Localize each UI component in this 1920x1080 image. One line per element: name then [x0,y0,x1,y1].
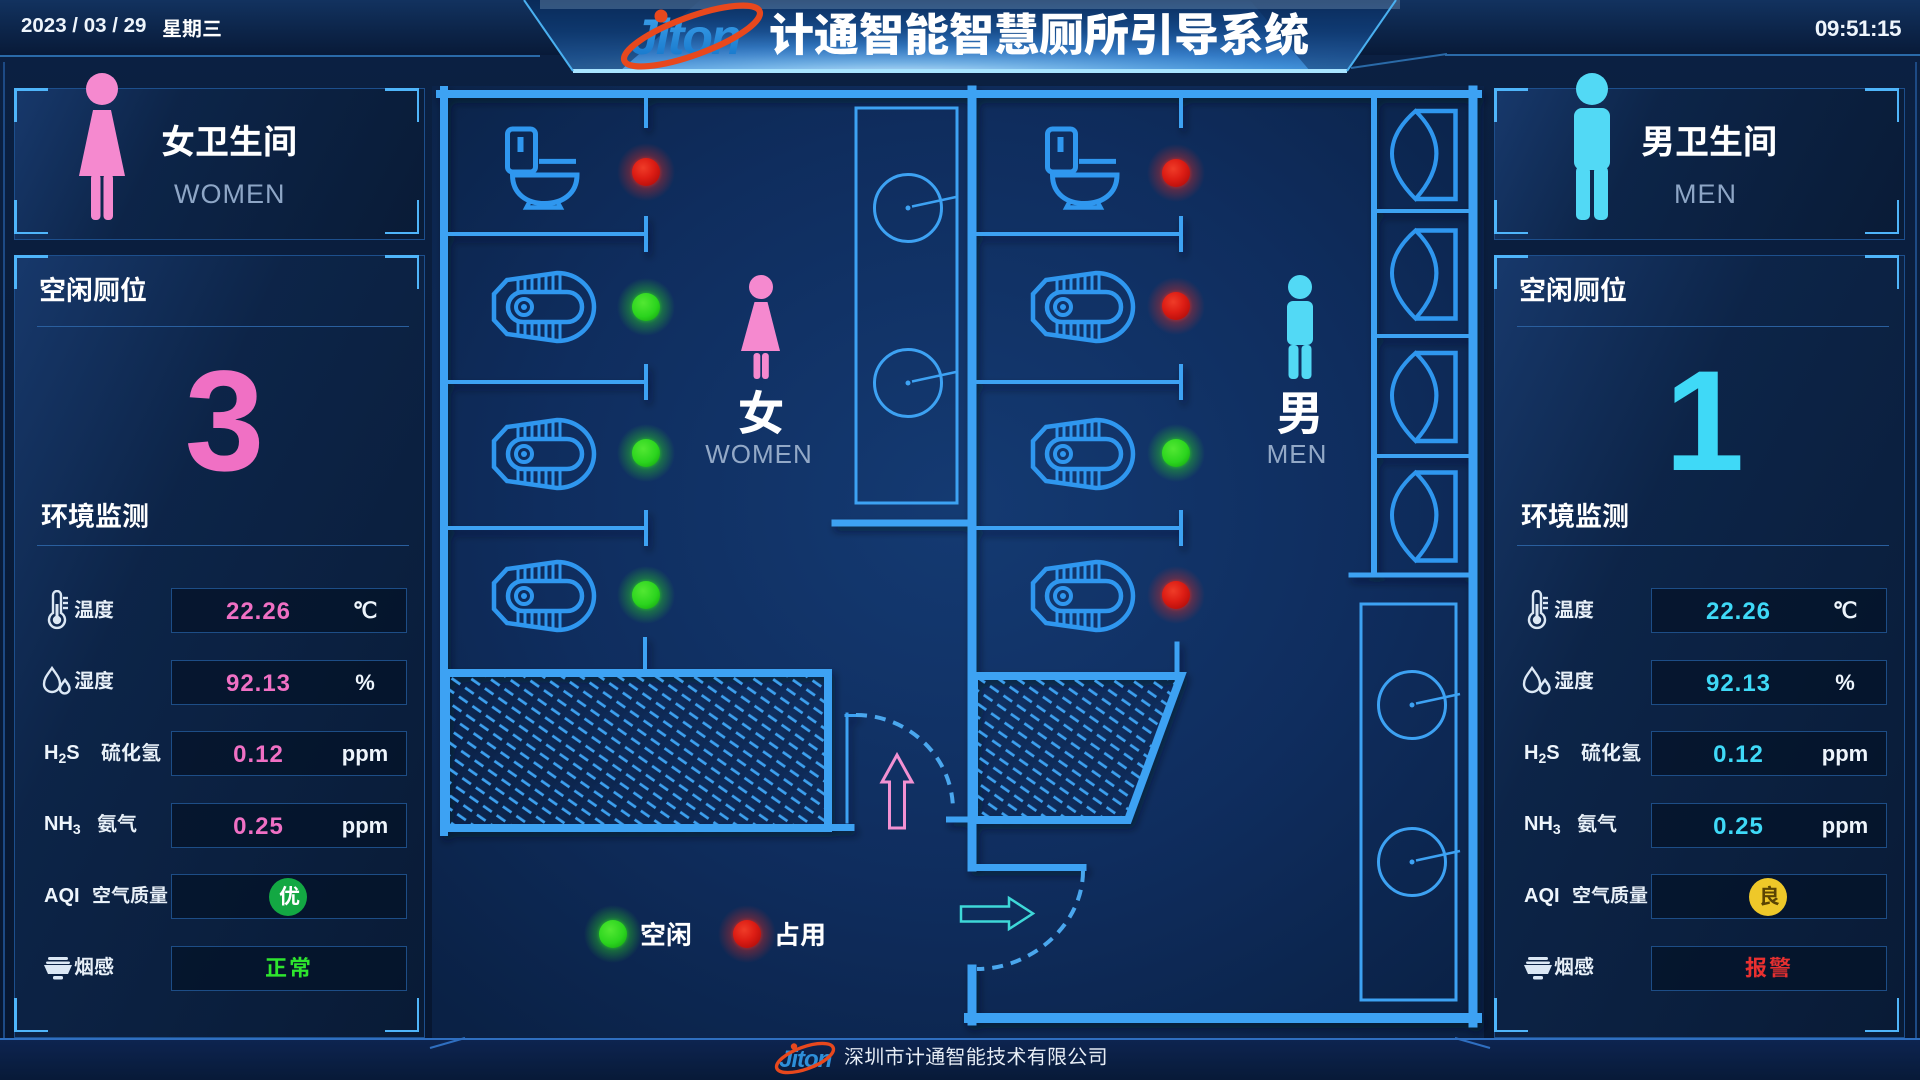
svg-text:WOMEN: WOMEN [705,439,813,469]
svg-text:MEN: MEN [1267,439,1328,469]
